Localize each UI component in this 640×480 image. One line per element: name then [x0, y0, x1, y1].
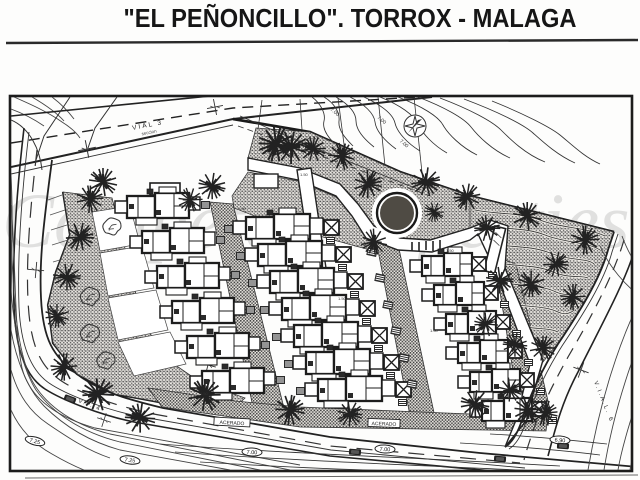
svg-text:ACERADO: ACERADO: [371, 421, 396, 428]
svg-text:1.50: 1.50: [338, 296, 347, 301]
svg-text:7.00: 7.00: [246, 450, 257, 457]
svg-text:1.50: 1.50: [430, 328, 439, 333]
svg-text:1.50: 1.50: [360, 242, 369, 247]
svg-text:1.50: 1.50: [200, 391, 209, 396]
svg-text:1.50: 1.50: [446, 248, 455, 253]
svg-text:"EL PEÑONCILLO". TORROX - MALA: "EL PEÑONCILLO". TORROX - MALAGA: [124, 3, 577, 33]
svg-text:1.50: 1.50: [300, 172, 309, 177]
svg-text:1.50: 1.50: [238, 206, 247, 211]
svg-text:7.00: 7.00: [379, 447, 390, 454]
